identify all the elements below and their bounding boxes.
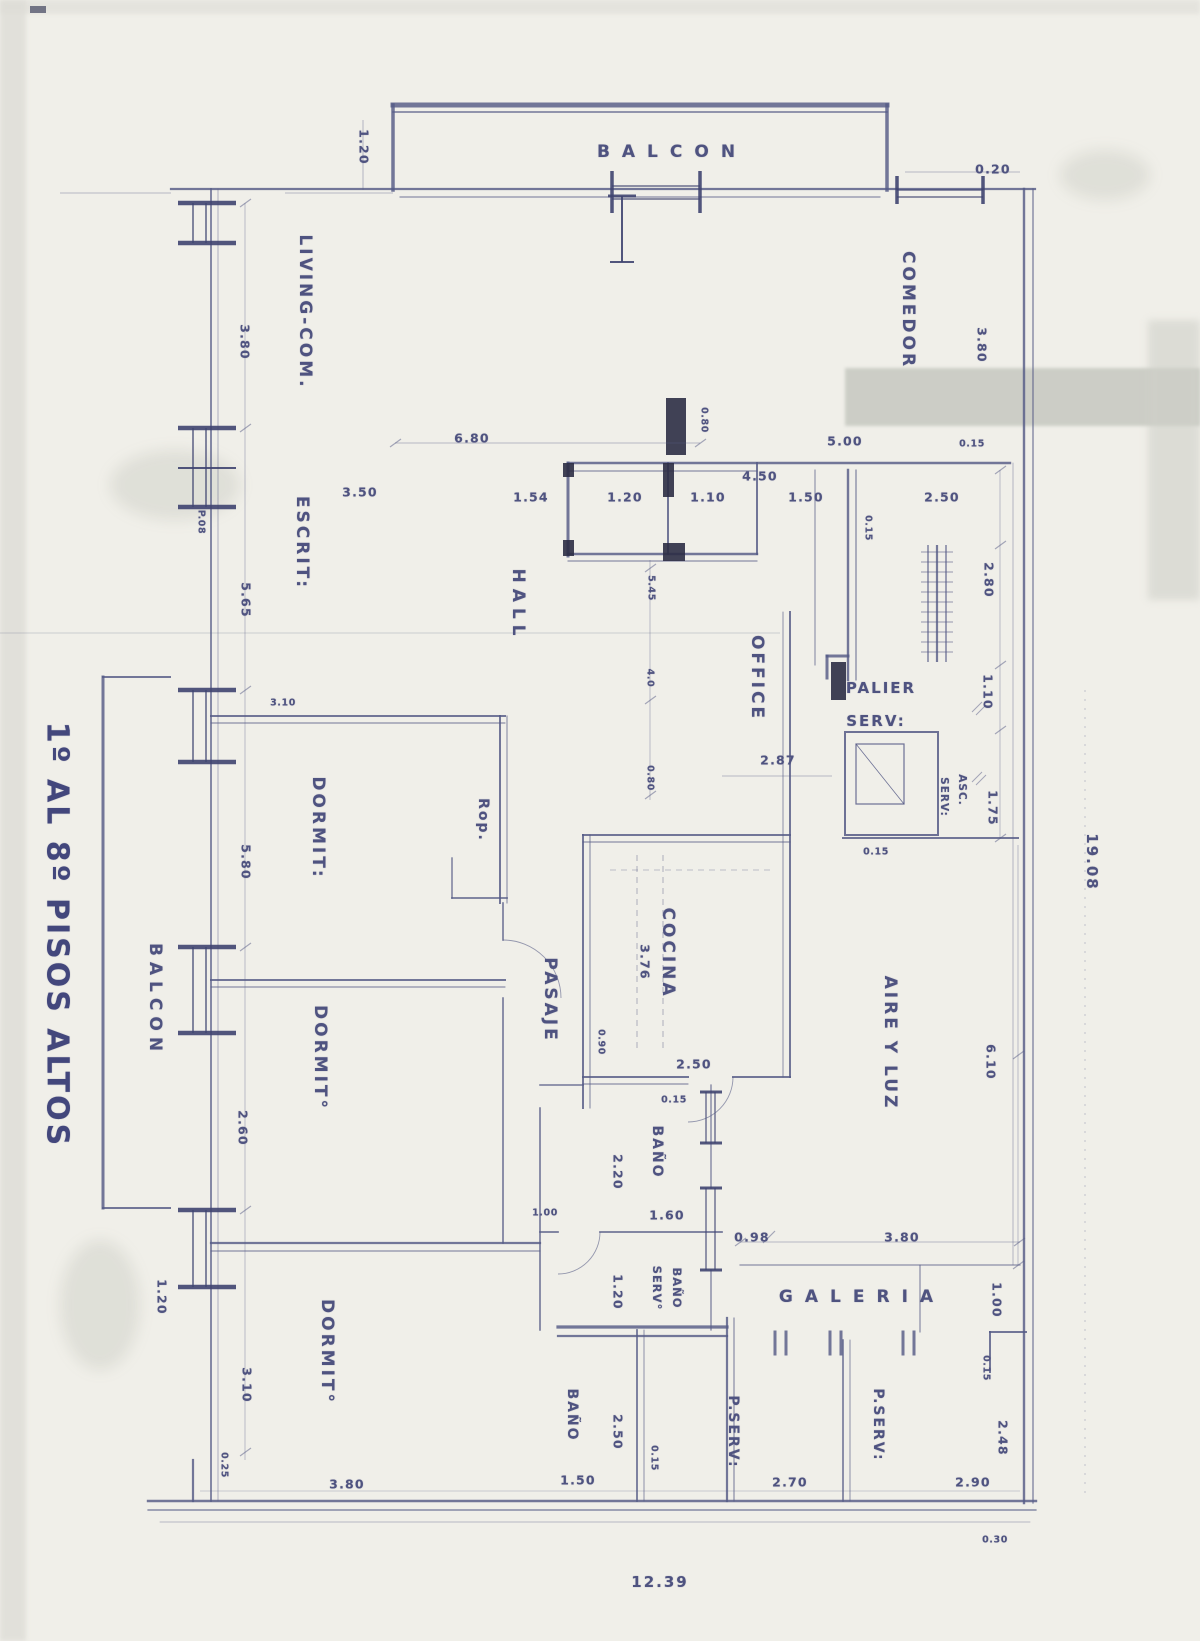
dimension-label: 5.80	[239, 844, 254, 880]
plan-title: 1º AL 8º PISOS ALTOS	[40, 722, 75, 1149]
dimension-label: 2.48	[996, 1420, 1011, 1456]
dimension-label: 2.50	[924, 490, 960, 505]
door-arcs	[503, 940, 733, 1274]
dimension-label-total-width: 12.39	[631, 1573, 688, 1591]
room-label-dormitorio-3: DORMIT°	[317, 1299, 337, 1405]
room-label-dormitorio-1: DORMIT:	[308, 776, 328, 879]
dimension-label: 2.87	[760, 753, 796, 768]
dimension-label: 3.50	[342, 485, 378, 500]
dimension-label: 6.10	[984, 1044, 999, 1080]
dimension-label: 1.54	[513, 490, 549, 505]
dimension-label: P.08	[196, 510, 207, 534]
room-label-balcon-left: BALCON	[145, 943, 165, 1057]
dimension-label: 3.80	[329, 1477, 365, 1492]
dimension-label: 1.20	[611, 1274, 626, 1310]
dimension-label: 1.00	[990, 1282, 1005, 1318]
dimension-label: 2.60	[236, 1110, 251, 1146]
room-label-palier-serv: SERV:	[846, 712, 906, 730]
dimension-label: 5.45	[646, 575, 657, 601]
dimension-label: 1.75	[986, 790, 1001, 826]
dimension-label: 0.15	[863, 847, 889, 858]
room-label-palier: PALIER	[846, 679, 916, 697]
dimension-label: 0.15	[863, 515, 874, 541]
room-label-galeria: GALERIA	[779, 1287, 945, 1307]
dimension-label: 2.50	[676, 1057, 712, 1072]
dimension-label: 0.80	[699, 407, 710, 433]
room-label-cocina: COCINA	[658, 907, 678, 998]
kitchen-counters	[610, 855, 775, 1050]
room-label-hall: HALL	[508, 568, 528, 641]
dimension-label: 3.80	[238, 324, 253, 360]
room-label-pasaje: PASAJE	[540, 957, 560, 1042]
dimension-label: 0.80	[645, 765, 656, 791]
dimension-label: 1.50	[560, 1473, 596, 1488]
room-label-ropero: Rop.	[475, 798, 491, 842]
room-label-asc-serv: SERV:	[938, 777, 950, 817]
room-label-bano-1: BAÑO	[649, 1125, 665, 1178]
dimension-label: 2.20	[611, 1154, 626, 1190]
dimension-label: 0.98	[734, 1230, 770, 1245]
dimension-label: 0.15	[959, 439, 985, 450]
dimension-label: 1.00	[532, 1208, 558, 1219]
room-label-comedor: COMEDOR	[898, 251, 918, 369]
dimension-label: 1.10	[981, 674, 996, 710]
room-label-pieza-serv-1: P.SERV:	[725, 1395, 741, 1468]
room-label-aire-y-luz: AIRE Y LUZ	[880, 976, 900, 1111]
dimension-label: 1.60	[649, 1208, 685, 1223]
dimension-label: 2.90	[955, 1475, 991, 1490]
room-label-bano-serv-2: SERV°	[650, 1266, 664, 1311]
room-label-living-com: LIVING-COM.	[295, 234, 315, 389]
room-label-pieza-serv-2: P.SERV:	[870, 1388, 886, 1461]
room-label-escritorio: ESCRIT:	[292, 496, 312, 590]
walls	[103, 105, 1036, 1522]
dimension-label-cocina-area: 3.76	[638, 944, 653, 980]
room-label-bano-2: BAÑO	[564, 1388, 580, 1441]
service-elevator	[845, 732, 938, 835]
dimension-label: 1.50	[788, 490, 824, 505]
dimension-label: 4.50	[742, 469, 778, 484]
room-label-office: OFFICE	[747, 635, 767, 721]
dimension-label: 2.70	[772, 1475, 808, 1490]
room-label-balcon-top: BALCON	[597, 142, 747, 162]
room-label-bano-serv: BAÑO	[670, 1267, 684, 1308]
dimension-label: 0.30	[982, 1535, 1008, 1546]
dimension-label: 1.20	[357, 129, 372, 165]
dimension-label: 5.00	[827, 434, 863, 449]
plan-drawing	[0, 0, 1200, 1641]
dimension-label: 0.90	[596, 1029, 607, 1055]
dimension-label: 2.50	[611, 1414, 626, 1450]
room-label-dormitorio-2: DORMIT°	[310, 1005, 330, 1111]
dimension-label: 0.20	[975, 162, 1011, 177]
dimension-label: 1.10	[690, 490, 726, 505]
dimension-label: 0.15	[661, 1095, 687, 1106]
dimension-label: 0.15	[649, 1445, 660, 1471]
dimension-label: 1.20	[607, 490, 643, 505]
dimension-label: 5.65	[239, 582, 254, 618]
dimension-label: 2.80	[982, 562, 997, 598]
service-stair	[921, 545, 953, 662]
dimension-label: 6.80	[454, 431, 490, 446]
dimension-label-total-height: 19.08	[1083, 833, 1101, 890]
dimension-label: 3.80	[884, 1230, 920, 1245]
dimension-label: 3.80	[975, 327, 990, 363]
floorplan-document: 1º AL 8º PISOS ALTOS BALCON COMEDOR LIVI…	[0, 0, 1200, 1641]
room-label-asc: ASC.	[956, 774, 968, 805]
dimension-label: 0.15	[981, 1355, 992, 1381]
dimension-label: 0.25	[219, 1452, 230, 1478]
dimension-label: 3.10	[270, 698, 296, 709]
dimension-label: 3.10	[240, 1367, 255, 1403]
dimension-label: 1.20	[155, 1279, 170, 1315]
dimension-label: 4.0	[645, 669, 656, 688]
